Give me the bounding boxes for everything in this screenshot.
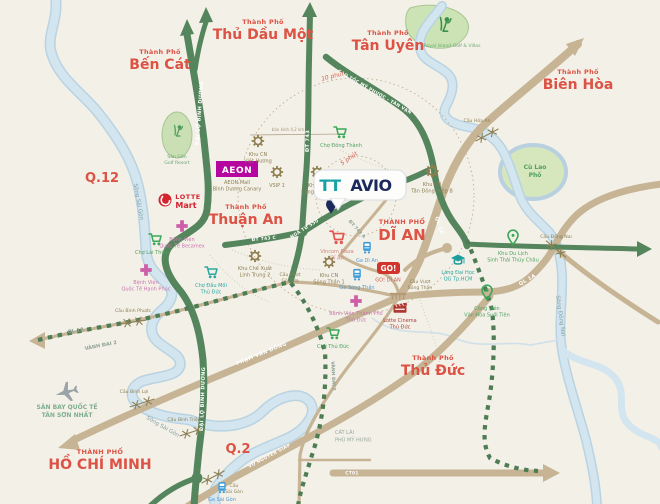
cho-dau-moi-2: Thủ Đức [200,289,222,296]
poi-tan-son-nhat: SÂN BAY QUỐC TẾ TÂN SƠN NHẤT [37,380,99,419]
poi-ga-di-an: Ga Dĩ An [356,242,378,264]
ring-label-10min: 10 phút [320,70,345,83]
thuy-chau-2: Sinh Thái Thủy Châu [487,257,539,264]
vincom-label-1: Vincom Plaza [320,249,353,255]
factory-gear-icon [271,166,283,178]
graduation-cap-icon [451,255,465,265]
tt-avio-logo-avio: AVIO [350,176,391,195]
tt-avio-logo-tt: TT [319,176,341,195]
road-label-ct01: CT01 [345,471,359,477]
island-label-cu-lao-2: Phố [529,172,543,179]
hospital-cross-icon [176,220,187,231]
san-bay-label-2: TÂN SƠN NHẤT [42,411,94,419]
arrow-dt743-north [302,2,317,17]
ga-di-an-label: Ga Dĩ An [356,258,378,264]
bridge-label-sai-gon-2: Sài Gòn [225,488,243,495]
city-thuan-an: Thuận An [209,212,284,228]
lotte-text-1: LOTTE [175,193,200,201]
city-ben-cat: Bến Cát [129,56,191,73]
city-thu-dau-mot: Thủ Dầu Một [213,26,314,43]
train-station-icon [353,269,361,281]
map-canvas: ĐẠI LỘ BÌNH DƯƠNG ĐẠI LỘ BÌNH DƯƠNG ĐT 7… [0,0,660,504]
thuy-chau-1: Khu Du Lịch [498,251,528,257]
vincom-label-2: Dĩ An [330,256,343,262]
san-bay-label-1: SÂN BAY QUỐC TẾ [37,403,99,411]
arrow-east [637,241,652,257]
airplane-icon [53,380,80,405]
ga-song-than-label: Ga Sóng Thần [339,283,374,291]
road-label-dt743c: ĐT 743 C [251,235,276,244]
bridge-label-go-dua-2: Gò Dưa [281,277,298,284]
cho-dau-moi-1: Chợ Đầu Mối [195,281,227,289]
radius-measure-line [250,134,342,135]
park-pin-icon [508,230,518,244]
city-di-an: DĨ AN [378,225,425,244]
train-station-icon [218,482,225,493]
road-bottom-left [150,478,197,504]
market-cart-icon [205,267,217,278]
kcn-viet-huong-1: Khu CN [249,152,268,158]
pois: AEON AEON Mall Bình Dương Canary LOTTE M… [37,17,539,503]
saigon-river-outline [50,0,312,504]
cho-lai-thieu-label: Chợ Lái Thiêu [135,249,169,256]
vsip1-label: VSIP 1 [269,183,285,189]
node-university-roundabout [442,243,452,253]
district-q12: Q.12 [85,171,119,186]
district-q2: Q.2 [225,442,250,457]
lotte-text-2: Mart [175,201,196,210]
kcn-viet-huong-2: Việt Hương [244,158,272,165]
cho-thu-duc-label: Chợ Thủ Đức [317,343,349,350]
location-map: ĐẠI LỘ BÌNH DƯƠNG ĐẠI LỘ BÌNH DƯƠNG ĐT 7… [0,0,660,504]
poi-vsip1: VSIP 1 [269,166,285,189]
city-bien-hoa: Biên Hòa [543,77,614,93]
city-prefix-thuan-an: Thành Phố [225,202,267,211]
bridge-label-binh-phuoc: Cầu Bình Phước [115,306,152,314]
kcx-linh-trung-1: Khu Chế Xuất [238,265,272,272]
bridge-label-go-dua-1: Cầu Vượt [279,270,300,278]
royal-golf-label: Royal Island Golf & Villas [423,43,481,49]
poi-aeon-mall: AEON AEON Mall Bình Dương Canary [213,161,262,193]
tt-avio-marker: TT AVIO [314,170,406,214]
road-label-vanh-dai-2: VÀNH ĐAI 2 [84,339,118,352]
lang-dai-hoc-1: Làng Đại Học [441,269,475,276]
kcn-tdh-2: Tân Đông Hiệp B [410,188,453,195]
ring-label-5min: 5 phút [339,150,360,167]
poi-go-di-an: GO! GO! DĨ AN [375,262,401,284]
aeon-label-2: Bình Dương Canary [213,186,262,193]
bv-thu-duc-2: Thủ Đức [345,317,367,324]
area-cat-lai: CÁT LÁI [335,429,354,436]
road-ql1a-southeast [554,247,658,322]
lang-dai-hoc-2: QG Tp.HCM [444,277,473,283]
hanh-phuc-label-1: Bệnh Viện [133,279,158,286]
city-prefix-tan-uyen: Thành Phố [367,28,409,37]
radius-note: bán kính 4,2 km [272,127,305,132]
kcn-tdh-1: Khu CN [423,182,442,188]
hanh-phuc-label-2: Quốc Tế Hạnh Phúc [121,286,170,293]
suoi-tien-2: Văn Hóa Suối Tiên [464,312,510,319]
poi-lang-dai-hoc: Làng Đại Học QG Tp.HCM [441,255,475,283]
market-cart-icon [330,231,344,244]
city-prefix-thu-dau-mot: Thành Phố [242,17,284,26]
road-label-ql1a-west: QL 1A [67,327,84,336]
city-prefix-ben-cat: Thành Phố [139,47,181,56]
becamex-label-1: Bệnh Viện [169,236,194,243]
island-label-cu-lao-1: Cù Lao [524,164,547,171]
kcx-linh-trung-2: Linh Trung 2 [240,273,271,279]
city-prefix-thu-duc: Thành Phố [412,353,454,362]
road-dlbd-branch [195,22,206,70]
road-vanh-dai-3 [467,240,538,471]
road-label-dt743: ĐT 743 [305,130,311,152]
hospital-cross-icon [350,295,361,306]
ga-sai-gon-label: Ga Sài Gòn [208,496,236,503]
saigon-river [50,0,312,504]
aeon-logo-text: AEON [222,166,252,176]
node-roundabout-south [192,473,203,484]
go-logo-text: GO! [381,264,397,273]
city-prefix-ho-chi-minh: THÀNH PHỐ [77,446,124,456]
market-cart-icon [334,127,346,138]
city-tan-uyen: Tân Uyên [352,38,425,54]
poi-cho-dong-thanh: Chợ Đông Thành [320,127,362,149]
go-di-an-label: GO! DĨ AN [375,277,401,284]
golf-resort-label-2: Golf Resort [164,160,190,166]
road-label-vanh-dai-2-south: VÀNH ĐAI 2 [329,361,338,391]
lotte-cinema-1: Lotte Cinema [383,318,416,324]
train-station-icon [363,242,371,254]
city-prefix-di-an: THÀNH PHỐ [379,216,426,226]
poi-cho-dau-moi: Chợ Đầu Mối Thủ Đức [195,267,227,296]
becamex-label-2: Quốc Tế Becamex [159,243,204,250]
bridge-label-hoa-an: Cầu Hóa An [464,116,491,124]
suoi-tien-1: Công Viên [474,305,499,312]
poi-lotte-mart: LOTTE Mart [159,193,201,210]
poi-kcn-viet-huong: Khu CN Việt Hương [244,135,272,165]
arrow-dlbd-north [180,19,194,36]
poi-kcx-linh-trung: Khu Chế Xuất Linh Trung 2 [238,250,272,279]
bv-thu-duc-1: Bệnh Viện Thành Phố [329,310,382,317]
city-ho-chi-minh: HỒ CHÍ MINH [48,454,151,473]
factory-gear-icon [252,135,264,147]
city-thu-duc: Thủ Đức [401,363,465,379]
arrow-dlbd-branch-north [199,7,213,23]
road-label-cao-toc: CAO TỐC MỸ PHƯỚC - TÂN VẠN [336,67,413,116]
kcn-song-than-1-1: Khu CN [320,273,339,279]
lotte-cinema-2: Thủ Đức [389,324,411,331]
city-prefix-bien-hoa: Thành Phố [557,67,599,76]
golf-resort-label-1: Sân Gôn [167,153,186,160]
factory-gear-icon [249,250,261,262]
arrow-ct01 [543,464,560,482]
area-phu-my-hung: PHÚ MỸ HƯNG [335,437,372,444]
cho-dong-thanh-label: Chợ Đông Thành [320,142,362,149]
aeon-label-1: AEON Mall [224,180,250,186]
